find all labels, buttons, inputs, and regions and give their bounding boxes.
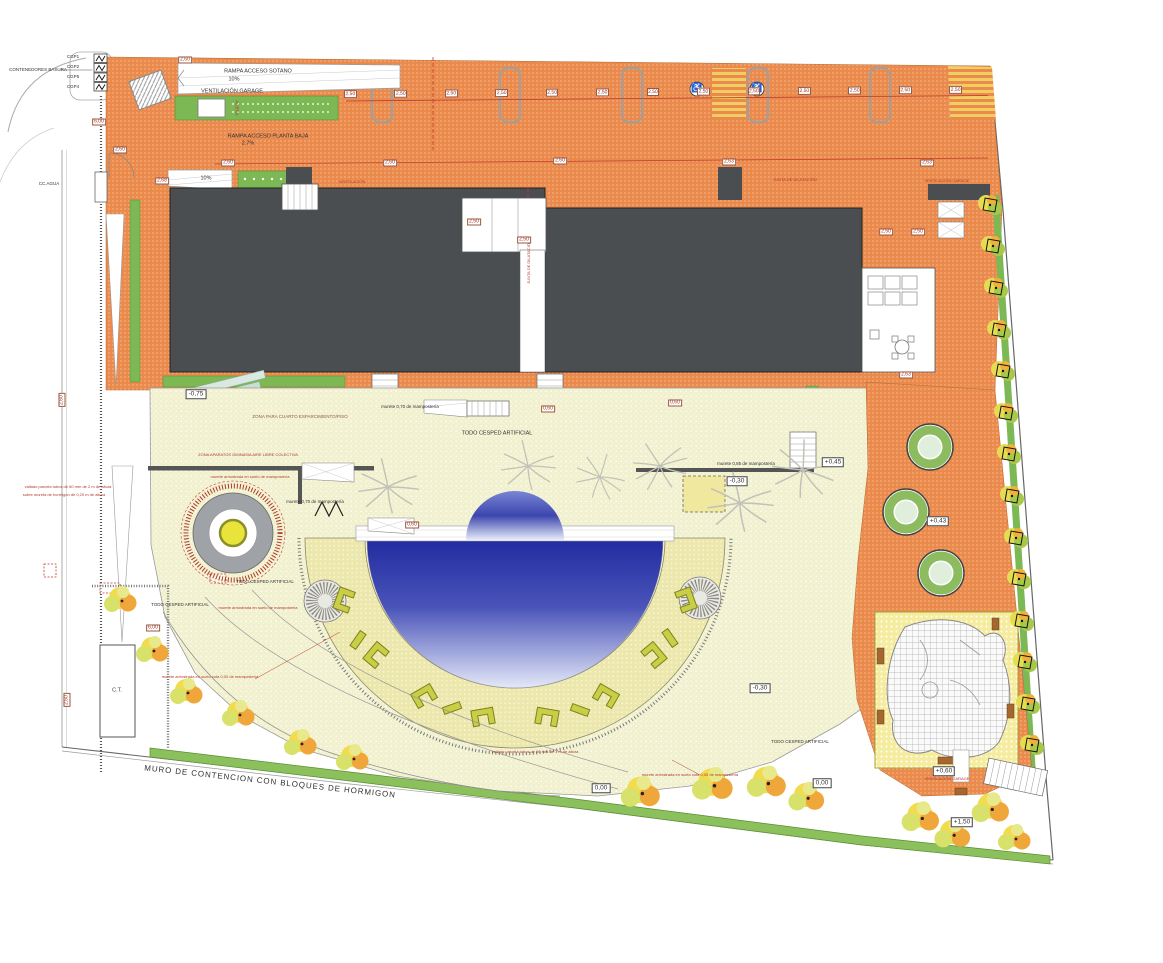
handicap-spot-circle xyxy=(690,82,704,96)
plan-drawing xyxy=(0,0,1163,963)
ct-box xyxy=(100,645,135,737)
terrace xyxy=(862,268,935,372)
cgp-boxes xyxy=(94,54,107,91)
site-plan: CONTENEDORES BASURA CGP1 CGP2 CGP5 CGP4 … xyxy=(0,0,1163,963)
handicap-spot-circle xyxy=(750,82,764,96)
